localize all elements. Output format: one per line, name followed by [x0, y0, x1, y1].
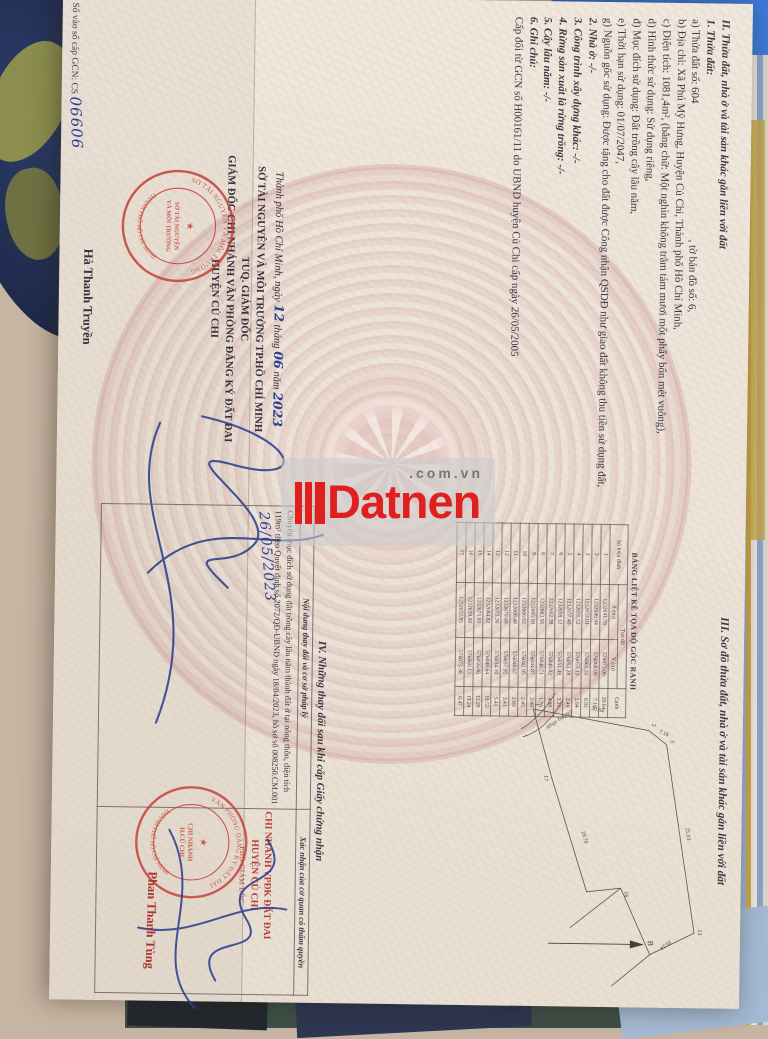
x-coordinate: 1232665.10 — [528, 583, 538, 638]
x-coordinate: 1232668.40 — [510, 583, 520, 638]
edge-length-label: 25.03 — [684, 828, 692, 842]
x-coordinate: 1232659.60 — [465, 582, 475, 637]
y-coordinate: 576051.49 — [554, 638, 564, 688]
edge-length-label: 7.16 — [658, 729, 670, 738]
coordinate-table-block: BẢNG LIỆT KÊ TỌA ĐỘ GÓC RANH Số hiệu đỉn… — [454, 522, 640, 719]
datnen-watermark: Datnen .com.vn — [281, 458, 495, 546]
edge-length: 6.92 — [581, 688, 590, 717]
point-number: 7 — [546, 524, 556, 584]
y-coordinate: 576073.00 — [599, 639, 609, 689]
edge-length: 19.24 — [464, 687, 473, 716]
photo-of-land-certificate: { "watermark": { "brand": "Datnen", "suf… — [0, 0, 768, 1024]
point-number: 11 — [510, 523, 520, 583]
vertex-label: 2 — [650, 724, 656, 727]
y-coordinate: 576048.02 — [545, 638, 555, 688]
y-coordinate: 576073.38 — [455, 637, 465, 687]
vertex-label: 13 — [696, 929, 702, 935]
edge-length: 2.40 — [527, 688, 536, 717]
handwritten-month: 06 — [271, 351, 286, 369]
section-ii-land-details: II. Thửa đất, nhà ở và tài sản khác gắn … — [504, 17, 733, 494]
x-coordinate: 1232641.76 — [600, 584, 610, 639]
edge-length: 2.45 — [518, 687, 527, 716]
y-coordinate: 576055.13 — [572, 639, 582, 689]
point-number: 9 — [528, 523, 538, 583]
y-coordinate: 576053.28 — [563, 638, 573, 688]
point-number: 3 — [582, 524, 592, 584]
parcel-sketch-map: 1 2 3 13 16 17 20.64 7.16 25.03 19.24 20… — [517, 691, 711, 994]
vertex-label: 17 — [542, 775, 548, 781]
x-coordinate: 1232684.82 — [483, 583, 493, 638]
north-label: B — [646, 941, 655, 946]
edge-length: 8.47 — [455, 687, 464, 716]
x-coordinate: 1232653.01 — [582, 584, 592, 639]
x-coordinate: 1232657.40 — [564, 584, 574, 639]
y-coordinate: 576044.87 — [527, 638, 537, 688]
x-coordinate: 1232675.03 — [474, 582, 484, 637]
x-coordinate: 1232670.49 — [501, 583, 511, 638]
vertex-label: 16 — [623, 891, 629, 897]
north-arrow-icon: B — [548, 939, 655, 948]
point-number: 4 — [573, 524, 583, 584]
handwritten-day: 12 — [272, 304, 287, 322]
y-coordinate: 576056.06 — [473, 637, 483, 687]
year-label: năm — [271, 371, 282, 389]
coordinate-table: Số hiệu đỉnh Tọa độ Cạnh X (m) Y (m) 1 1… — [454, 522, 629, 718]
edge-length: 4.90 — [545, 688, 554, 717]
col-header-x: X (m) — [609, 584, 619, 639]
point-number: 6 — [555, 524, 565, 584]
edge-length: 3.41 — [500, 687, 509, 716]
y-coordinate: 576042.95 — [518, 638, 528, 688]
x-coordinate: 1232659.12 — [555, 584, 565, 639]
point-number: 1 — [600, 524, 610, 584]
point-number: 10 — [519, 523, 529, 583]
x-coordinate: 1232673.36 — [492, 583, 502, 638]
col-header-point: Số hiệu đỉnh — [609, 525, 628, 585]
y-coordinate: 576040.67 — [509, 638, 519, 688]
x-coordinate: 1232649.94 — [591, 584, 601, 639]
col-header-edge: Cạnh — [608, 689, 626, 718]
edge-length: 1.76 — [536, 688, 545, 717]
point-number: 8 — [537, 524, 547, 584]
edge-length: 12.28 — [473, 687, 482, 716]
svg-text:THÀNH PHỐ HỒ CHÍ MINH: THÀNH PHỐ HỒ CHÍ MINH — [135, 190, 159, 260]
vertex-label: 3 — [669, 740, 675, 743]
y-coordinate: 576068.09 — [590, 639, 600, 689]
datnen-brand-text: Datnen — [327, 476, 480, 528]
edge-length: 7.16 — [590, 688, 599, 717]
edge-length: 20.64 — [599, 689, 608, 718]
datnen-domain-suffix: .com.vn — [409, 465, 483, 481]
edge-length: 18.52 — [482, 687, 491, 716]
stamp-center-line1: SỞ TÀI NGUYÊN — [172, 202, 181, 251]
edge-length: 5.41 — [491, 687, 500, 716]
col-header-coord: Tọa độ — [617, 584, 627, 688]
y-coordinate: 576061.31 — [581, 639, 591, 689]
place-text: Thành phố Hồ Chí Minh, ngày — [272, 172, 285, 302]
y-coordinate: 576046.71 — [536, 638, 546, 688]
point-number: 12 — [501, 523, 511, 583]
book-number-label: Số vào sổ cấp GCN: CS — [69, 2, 80, 96]
point-number: 2 — [591, 524, 601, 584]
y-coordinate: 576048.64 — [482, 637, 492, 687]
edge-length: 2.49 — [563, 688, 572, 717]
edge-length: 2.31 — [554, 688, 563, 717]
col-header-y: Y (m) — [608, 639, 618, 689]
edge-length: 2.89 — [509, 687, 518, 716]
x-coordinate: 1232655.52 — [573, 584, 583, 639]
y-coordinate: 576034.10 — [491, 637, 501, 687]
y-coordinate: 576068.13 — [464, 637, 474, 687]
stamp-star-icon: ★ — [185, 222, 195, 230]
x-coordinate: 1232666.62 — [519, 583, 529, 638]
official-round-stamp: SỞ TÀI NGUYÊN VÀ MÔI TRƯỜNG THÀNH PHỐ HỒ… — [119, 167, 237, 285]
datnen-building-icon — [295, 482, 325, 524]
x-coordinate: 1232663.56 — [537, 583, 547, 638]
x-coordinate: 1232652.95 — [456, 582, 466, 637]
book-number-handwritten: 06606 — [66, 96, 86, 149]
edge-length: 2.64 — [572, 688, 581, 717]
y-coordinate: 576037.92 — [500, 638, 510, 688]
point-number: 5 — [564, 524, 574, 584]
month-label: tháng — [271, 324, 282, 348]
x-coordinate: 1232662.38 — [546, 583, 556, 638]
stamp-arc-bottom: THÀNH PHỐ HỒ CHÍ MINH — [135, 190, 159, 260]
